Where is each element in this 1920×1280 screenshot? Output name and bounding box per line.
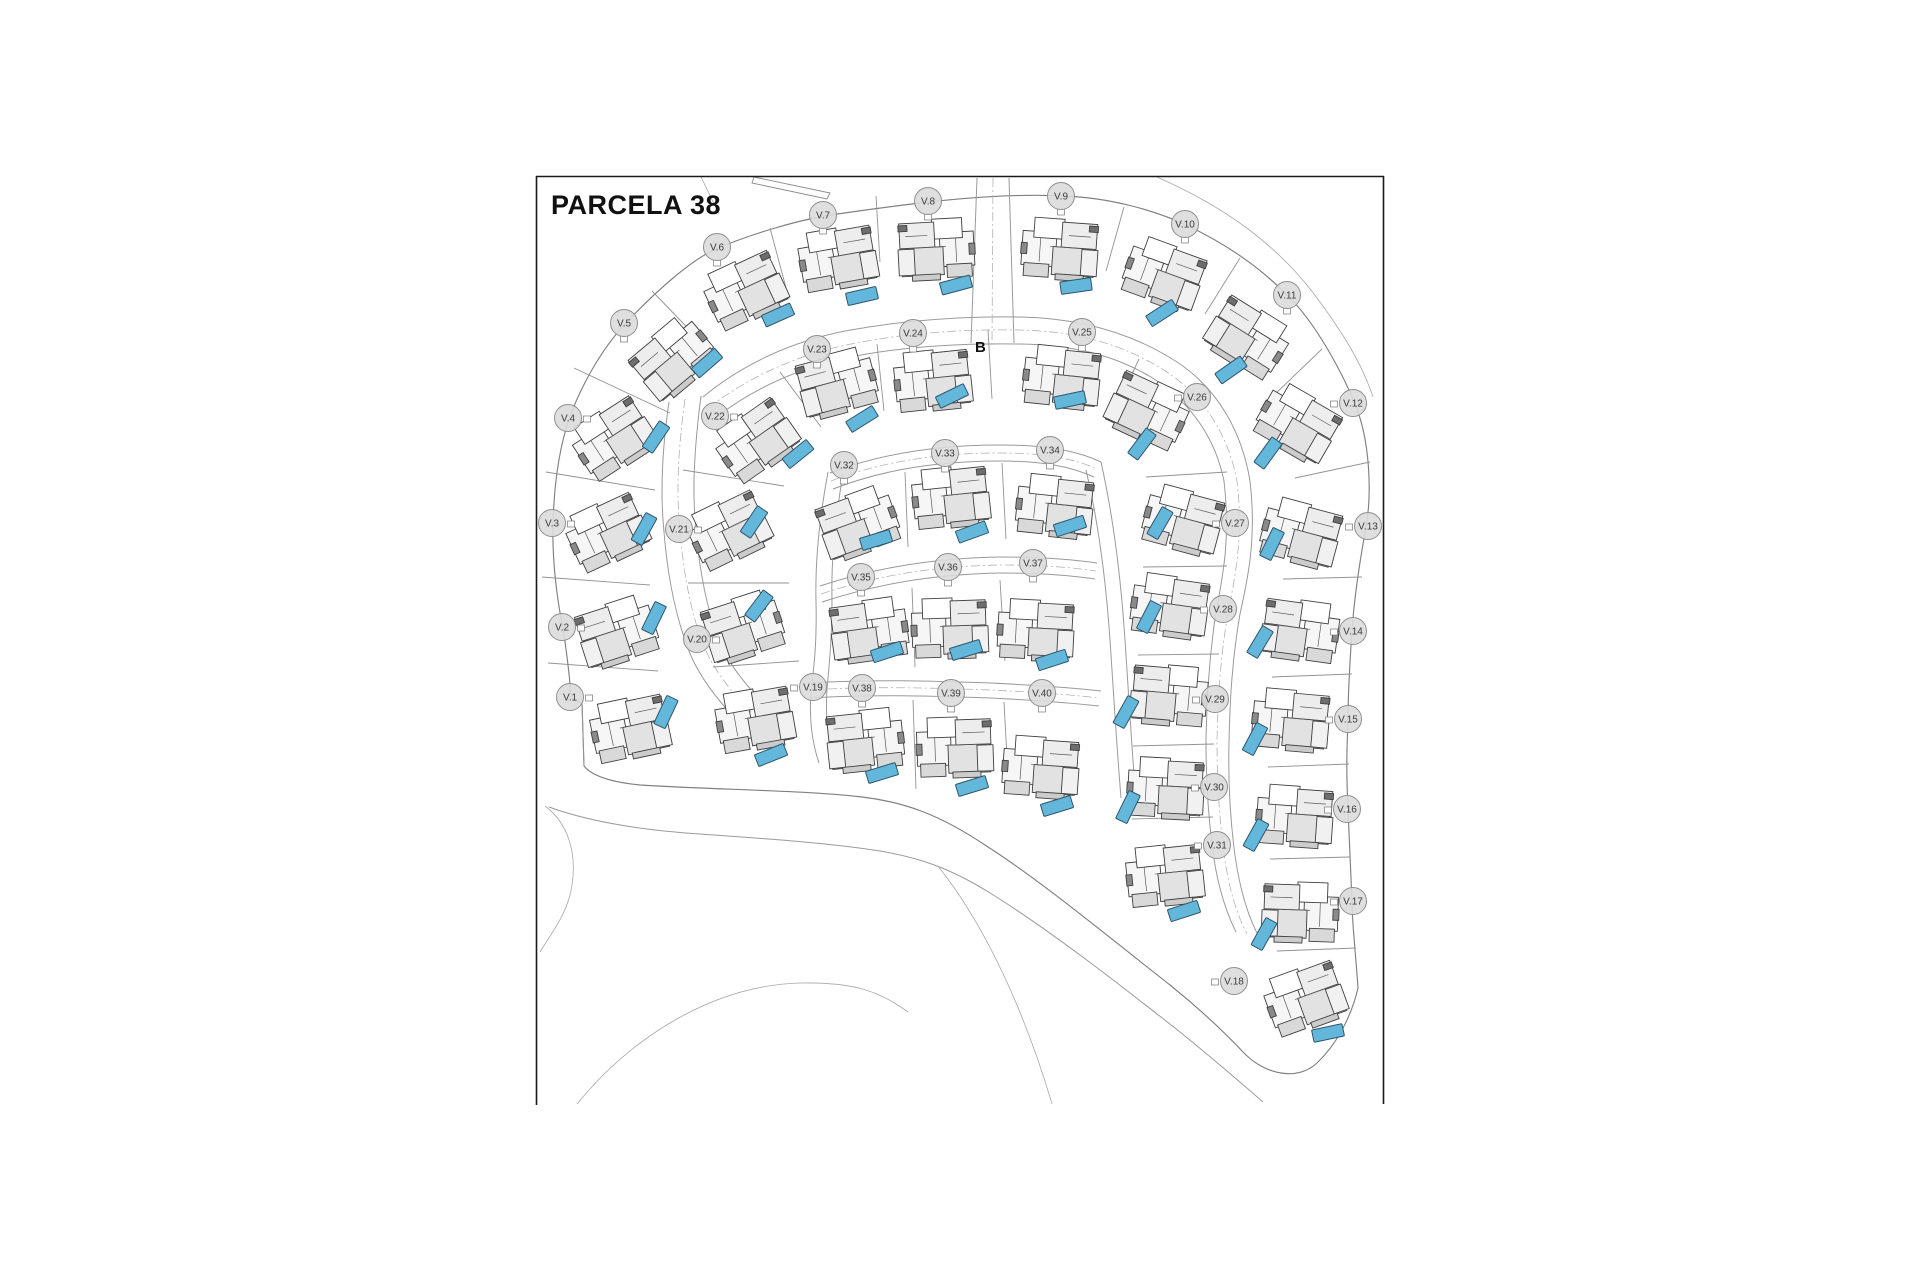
plot-label-text: V.35 xyxy=(851,573,871,584)
house-room xyxy=(1274,936,1302,943)
house-room xyxy=(652,696,662,704)
house-room xyxy=(1134,667,1143,674)
house-room xyxy=(829,609,839,616)
house-room xyxy=(1070,744,1079,751)
plot-v36 xyxy=(910,597,989,661)
plot-label-text: V.18 xyxy=(1224,977,1244,988)
house-room xyxy=(977,602,986,608)
plot-label-text: V.21 xyxy=(669,525,689,536)
house-footprint xyxy=(711,683,797,756)
plot-entrance-marker xyxy=(586,695,593,701)
house-room xyxy=(1135,845,1167,868)
plot-label-text: V.30 xyxy=(1204,783,1224,794)
house-room xyxy=(1132,892,1158,908)
plot-label-text: V.33 xyxy=(935,449,955,460)
house-room xyxy=(916,644,941,658)
house-room xyxy=(958,351,968,358)
plot-label-text: V.4 xyxy=(561,414,576,425)
house-footprint xyxy=(794,222,880,295)
plot-entrance-marker xyxy=(1346,524,1353,530)
house-room xyxy=(1015,735,1046,757)
plot-entrance-marker xyxy=(1201,607,1208,613)
house-room xyxy=(976,468,986,475)
house-room xyxy=(1315,817,1333,844)
house-room xyxy=(921,763,946,777)
plot-label-text: V.12 xyxy=(1343,399,1363,410)
house-room xyxy=(1321,698,1330,705)
house-room xyxy=(1333,909,1339,920)
house-room xyxy=(1311,721,1329,748)
house-room xyxy=(1021,242,1028,253)
section-marker-b: B xyxy=(975,339,986,356)
plot-entrance-marker xyxy=(1213,521,1220,527)
house-room xyxy=(1309,928,1334,942)
house-room xyxy=(1265,688,1297,711)
plot-label-text: V.23 xyxy=(807,345,827,356)
house-room xyxy=(1298,600,1330,624)
house-room xyxy=(1187,870,1206,898)
house-room xyxy=(927,717,958,738)
house-room xyxy=(912,274,940,281)
house-room xyxy=(1065,606,1074,612)
plot-label-text: V.27 xyxy=(1225,519,1245,530)
house-room xyxy=(1126,874,1133,886)
house-room xyxy=(1036,344,1068,367)
house-room xyxy=(1000,644,1026,658)
house-room xyxy=(1080,250,1098,277)
plot-label-text: V.32 xyxy=(834,461,854,472)
plot-label-text: V.3 xyxy=(545,519,560,530)
house-room xyxy=(1010,599,1041,621)
plot-label-text: V.37 xyxy=(1023,559,1043,570)
house-room xyxy=(1015,498,1022,510)
plot-label-text: V.15 xyxy=(1338,715,1358,726)
plot-entrance-marker xyxy=(1195,843,1202,849)
house-room xyxy=(1024,389,1050,405)
house-room xyxy=(997,624,1004,635)
plot-label-text: V.6 xyxy=(710,243,725,254)
house-room xyxy=(799,260,807,272)
plot-label-text: V.19 xyxy=(803,683,823,694)
house-room xyxy=(1161,813,1189,820)
plot-label-text: V.34 xyxy=(1040,446,1060,457)
house-room xyxy=(827,741,846,769)
house-room xyxy=(1034,217,1065,239)
house-room xyxy=(1017,518,1043,534)
house-room xyxy=(1324,793,1333,800)
plot-entrance-marker xyxy=(1331,401,1338,407)
house-footprint xyxy=(915,716,994,780)
plot-label-text: V.26 xyxy=(1187,393,1207,404)
house-room xyxy=(900,397,926,413)
plot-label-text: V.38 xyxy=(852,684,872,695)
plot-label-text: V.20 xyxy=(687,635,707,646)
house-room xyxy=(778,688,788,695)
house-room xyxy=(831,632,850,660)
house-room xyxy=(898,225,907,231)
house-room xyxy=(716,721,724,733)
house-room xyxy=(1167,665,1199,688)
house-room xyxy=(911,625,917,636)
plot-label-text: V.36 xyxy=(938,563,958,574)
house-room xyxy=(898,249,915,276)
plan-title: PARCELA 38 xyxy=(551,190,721,220)
house-room xyxy=(1176,712,1202,727)
plot-label-text: V.24 xyxy=(903,329,923,340)
house-room xyxy=(1085,484,1095,491)
plot-label-text: V.40 xyxy=(1032,689,1052,700)
plot-entrance-marker xyxy=(1331,899,1338,905)
house-room xyxy=(1004,781,1030,796)
plot-entrance-marker xyxy=(1193,697,1200,703)
plot-label-text: V.7 xyxy=(816,211,831,222)
site-plan-svg: V.1V.2V.3V.4V.5V.6V.7V.8V.9V.10V.11V.12V… xyxy=(0,0,1920,1280)
house-room xyxy=(826,718,836,725)
plot-entrance-marker xyxy=(713,637,720,643)
house-room xyxy=(903,350,935,373)
plot-entrance-marker xyxy=(1325,807,1332,813)
plot-label-text: V.31 xyxy=(1207,841,1227,852)
house-room xyxy=(931,218,962,240)
plot-label-text: V.13 xyxy=(1358,522,1378,533)
house-room xyxy=(1002,760,1009,771)
house-room xyxy=(894,379,901,391)
plot-label-text: V.16 xyxy=(1337,805,1357,816)
plot-label-text: V.14 xyxy=(1343,627,1363,638)
plot-entrance-marker xyxy=(1331,629,1338,635)
plot-entrance-marker xyxy=(791,685,798,691)
drawing-canvas: V.1V.2V.3V.4V.5V.6V.7V.8V.9V.10V.11V.12V… xyxy=(0,0,1920,1280)
house-room xyxy=(897,732,904,744)
house-room xyxy=(1297,882,1328,903)
house-room xyxy=(1264,886,1273,892)
house-room xyxy=(977,745,994,772)
house-room xyxy=(1266,600,1276,607)
house-room xyxy=(1195,764,1204,770)
house-room xyxy=(982,721,991,727)
house-room xyxy=(1023,263,1049,278)
plot-label-text: V.17 xyxy=(1343,897,1363,908)
plot-entrance-marker xyxy=(568,521,575,527)
house-room xyxy=(901,621,908,633)
house-room xyxy=(1140,757,1171,779)
plot-entrance-marker xyxy=(1326,717,1333,723)
house-room xyxy=(916,744,922,755)
plot-v17 xyxy=(1251,881,1340,951)
house-room xyxy=(1029,473,1061,496)
house-room xyxy=(862,597,894,621)
plot-label-text: V.5 xyxy=(617,319,632,330)
plot-label-text: V.25 xyxy=(1072,328,1092,339)
house-room xyxy=(1061,768,1079,795)
plot-label-text: V.39 xyxy=(941,689,961,700)
house-room xyxy=(973,492,992,520)
house-room xyxy=(1022,369,1029,381)
plot-label-text: V.9 xyxy=(1054,192,1069,203)
house-footprint xyxy=(1261,881,1340,945)
plot-entrance-marker xyxy=(1212,979,1219,985)
house-room xyxy=(1145,573,1177,597)
plot-label-text: V.1 xyxy=(563,693,578,704)
house-room xyxy=(861,227,871,234)
house-room xyxy=(918,514,944,530)
plot-label-text: V.10 xyxy=(1175,220,1195,231)
plot-entrance-marker xyxy=(584,416,591,422)
house-room xyxy=(859,707,891,730)
house-room xyxy=(953,771,981,778)
house-room xyxy=(1269,784,1300,806)
house-room xyxy=(969,243,976,254)
plot-entrance-marker xyxy=(1192,785,1199,791)
house-room xyxy=(912,496,919,508)
plot-label-text: V.2 xyxy=(555,623,570,634)
plot-entrance-marker xyxy=(578,625,585,631)
house-room xyxy=(1130,597,1137,609)
plot-entrance-marker xyxy=(731,414,738,420)
house-room xyxy=(922,598,953,619)
plot-label-text: V.22 xyxy=(705,412,725,423)
house-room xyxy=(1089,226,1098,233)
plot-label-text: V.11 xyxy=(1278,291,1297,302)
plot-label-text: V.29 xyxy=(1205,695,1225,706)
house-room xyxy=(1092,355,1102,362)
plot-entrance-marker xyxy=(1175,395,1182,401)
plot-entrance-marker xyxy=(695,527,702,533)
plot-label-text: V.8 xyxy=(921,197,936,208)
plot-label-text: V.28 xyxy=(1213,605,1233,616)
house-room xyxy=(1200,585,1210,592)
